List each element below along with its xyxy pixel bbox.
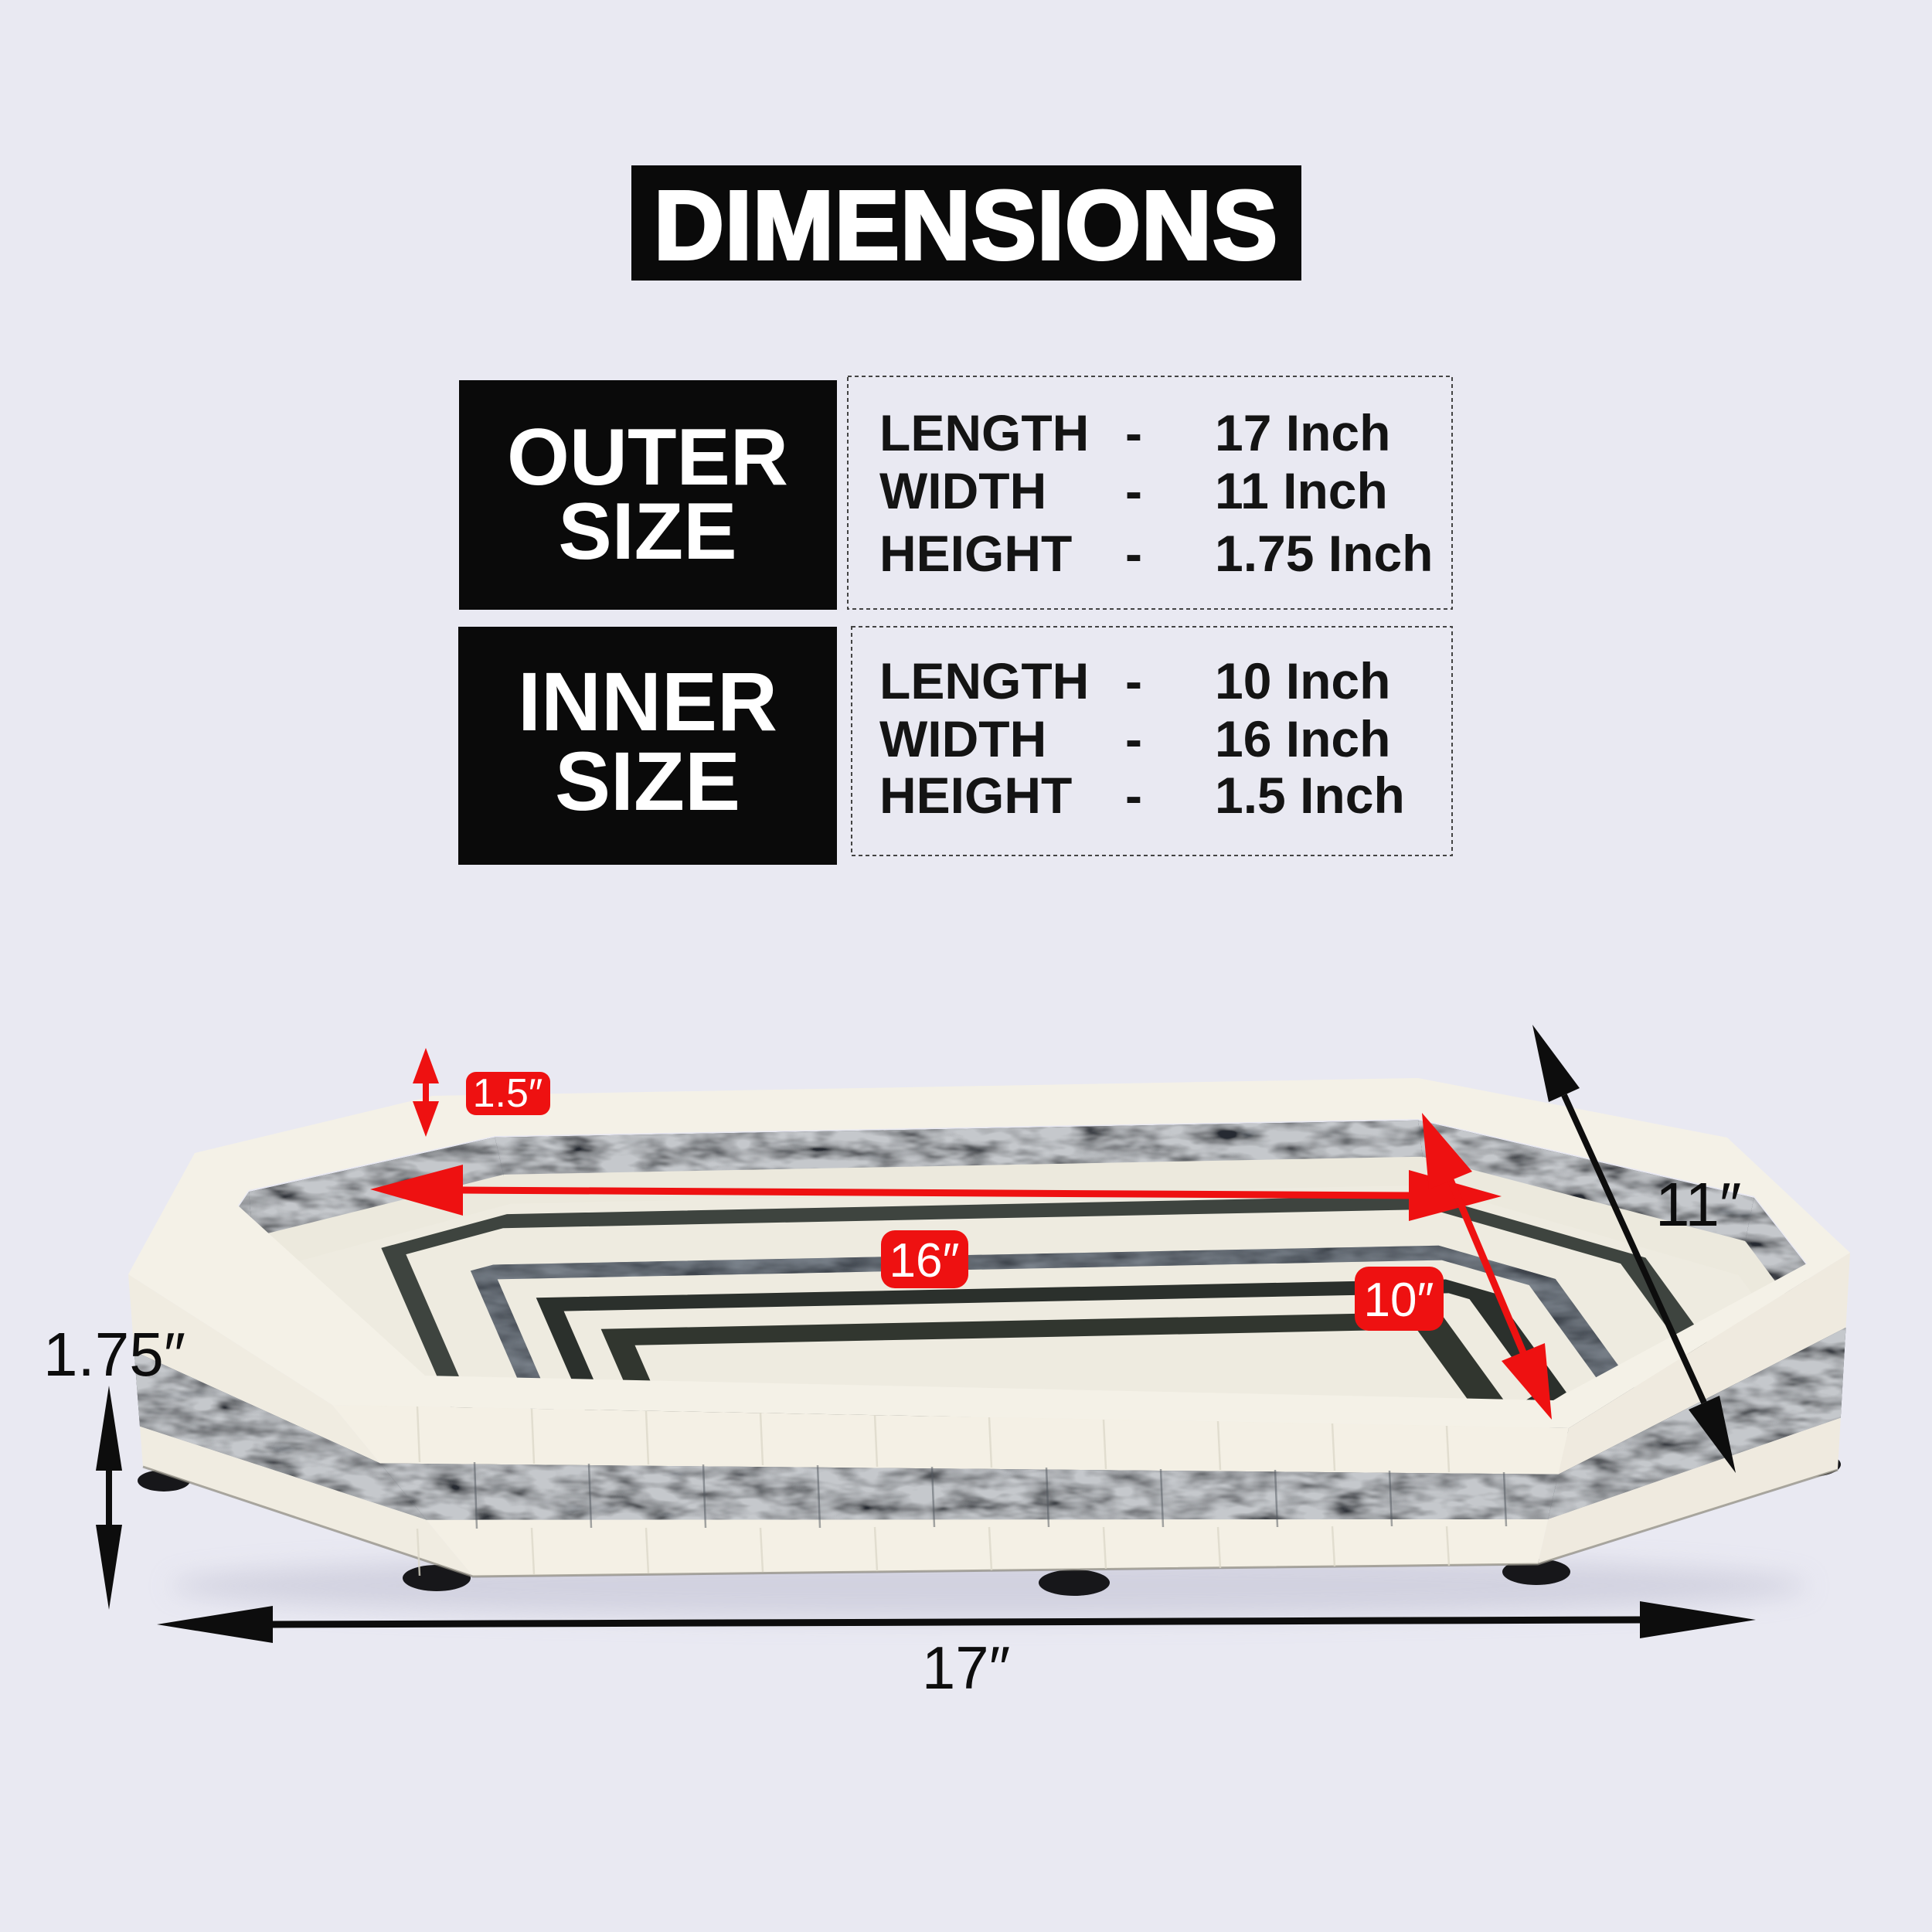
svg-text:HEIGHT: HEIGHT (879, 767, 1072, 824)
svg-text:-: - (1125, 525, 1142, 582)
svg-text:SIZE: SIZE (558, 487, 736, 577)
svg-text:10″: 10″ (1364, 1274, 1434, 1327)
svg-text:WIDTH: WIDTH (879, 462, 1046, 519)
svg-text:-: - (1125, 710, 1142, 767)
svg-text:10 Inch: 10 Inch (1215, 652, 1390, 709)
svg-text:LENGTH: LENGTH (879, 652, 1089, 709)
svg-text:-: - (1125, 404, 1142, 461)
svg-text:1.75″: 1.75″ (43, 1320, 185, 1389)
svg-text:-: - (1125, 462, 1142, 519)
svg-text:WIDTH: WIDTH (879, 710, 1046, 767)
svg-text:17 Inch: 17 Inch (1215, 404, 1390, 461)
svg-text:16 Inch: 16 Inch (1215, 710, 1390, 767)
svg-text:1.5 Inch: 1.5 Inch (1215, 767, 1405, 824)
svg-text:11 Inch: 11 Inch (1215, 462, 1388, 519)
svg-text:DIMENSIONS: DIMENSIONS (654, 171, 1278, 280)
svg-text:11″: 11″ (1655, 1170, 1741, 1239)
svg-text:LENGTH: LENGTH (879, 404, 1089, 461)
svg-text:HEIGHT: HEIGHT (879, 525, 1072, 582)
svg-text:1.5″: 1.5″ (473, 1071, 543, 1116)
svg-text:-: - (1125, 652, 1142, 709)
svg-text:16″: 16″ (889, 1234, 960, 1287)
svg-text:SIZE: SIZE (555, 734, 740, 828)
svg-text:1.75 Inch: 1.75 Inch (1215, 525, 1433, 582)
svg-text:17″: 17″ (922, 1634, 1010, 1702)
svg-text:-: - (1125, 767, 1142, 824)
